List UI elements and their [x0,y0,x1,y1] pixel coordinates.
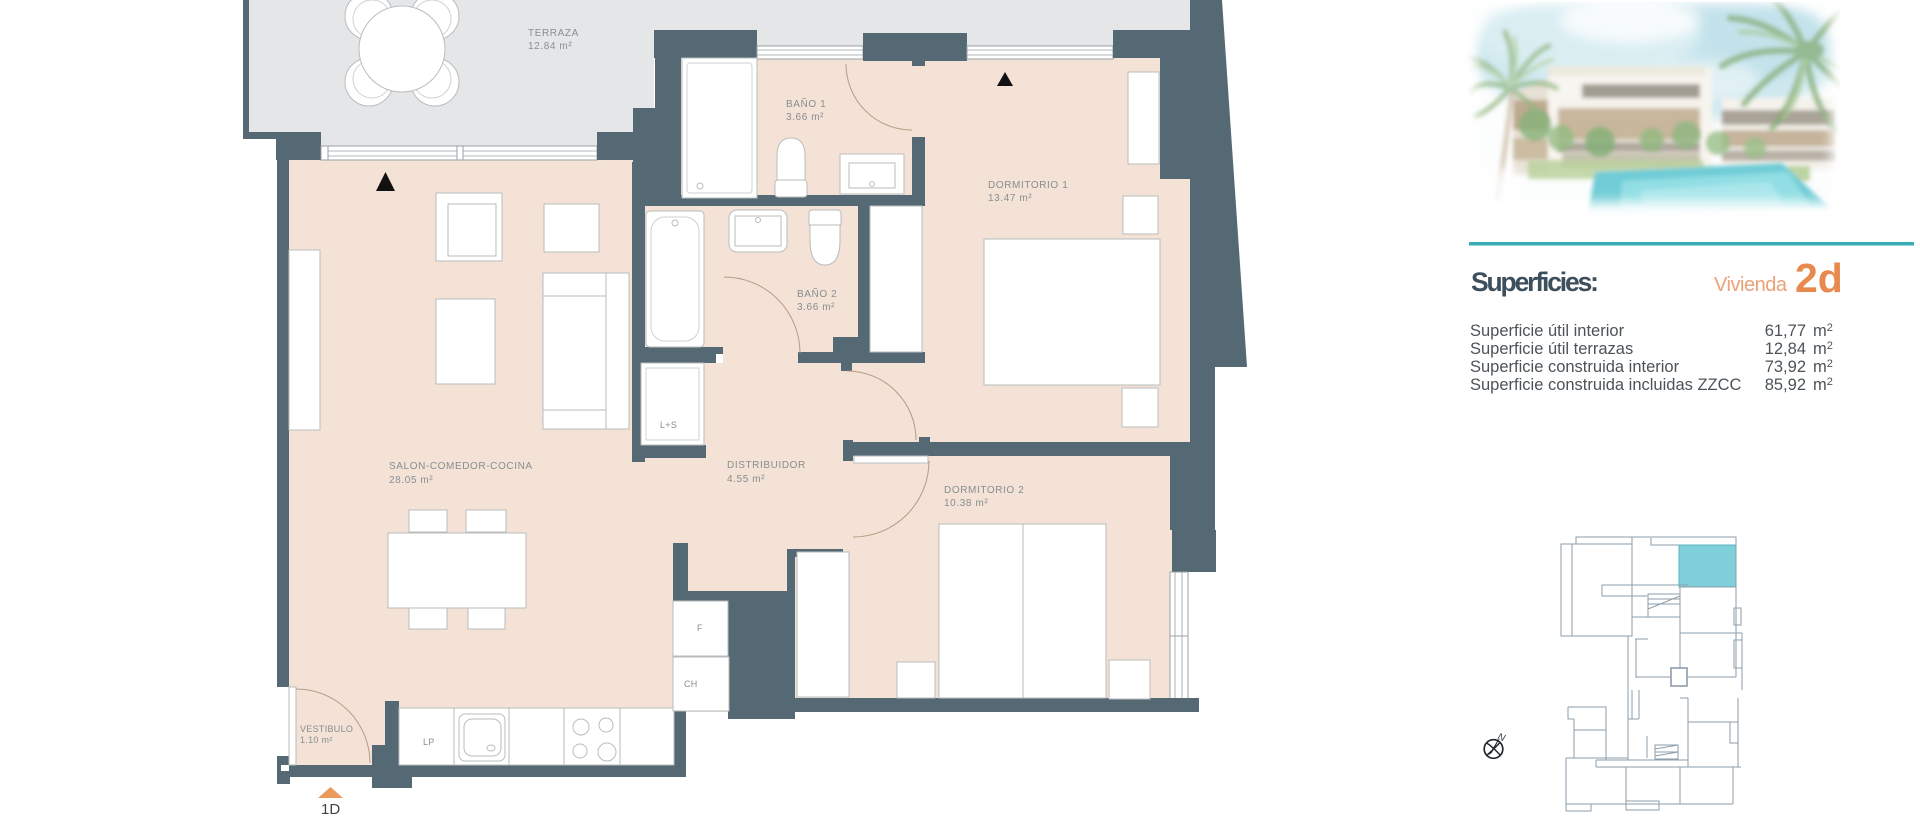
svg-text:Superficie construida interior: Superficie construida interior [1470,358,1680,376]
svg-text:10.38 m²: 10.38 m² [944,498,988,509]
svg-text:3.66 m²: 3.66 m² [786,112,824,123]
svg-text:12,84: 12,84 [1765,340,1806,358]
svg-text:2d: 2d [1795,255,1843,301]
svg-text:Superficies:: Superficies: [1471,267,1599,297]
svg-text:28.05 m²: 28.05 m² [389,475,433,486]
svg-text:SALON-COMEDOR-COCINA: SALON-COMEDOR-COCINA [389,461,533,472]
svg-text:3.66 m²: 3.66 m² [797,302,835,313]
svg-text:73,92: 73,92 [1765,358,1806,376]
svg-text:BAÑO 1: BAÑO 1 [786,97,826,110]
svg-text:4.55 m²: 4.55 m² [727,474,765,485]
svg-text:DORMITORIO 2: DORMITORIO 2 [944,485,1024,496]
svg-text:1.10 m²: 1.10 m² [300,735,333,745]
svg-text:Superficie construida incluida: Superficie construida incluidas ZZCC [1470,376,1742,394]
svg-text:12.84 m²: 12.84 m² [528,41,572,52]
svg-text:61,77: 61,77 [1765,322,1806,340]
svg-text:CH: CH [684,679,698,689]
svg-text:L+S: L+S [660,420,677,430]
svg-text:BAÑO 2: BAÑO 2 [797,287,837,300]
svg-text:1D: 1D [321,801,340,818]
svg-text:VESTIBULO: VESTIBULO [300,724,353,734]
svg-text:13.47 m²: 13.47 m² [988,193,1032,204]
svg-text:DISTRIBUIDOR: DISTRIBUIDOR [727,460,806,471]
svg-text:Superficie útil terrazas: Superficie útil terrazas [1470,340,1633,358]
svg-text:DORMITORIO 1: DORMITORIO 1 [988,180,1068,191]
svg-text:LP: LP [423,737,435,747]
svg-text:TERRAZA: TERRAZA [528,28,579,39]
svg-text:Superficie útil interior: Superficie útil interior [1470,322,1625,340]
svg-text:85,92: 85,92 [1765,376,1806,394]
svg-text:Vivienda: Vivienda [1714,274,1788,296]
svg-text:F: F [697,623,703,633]
